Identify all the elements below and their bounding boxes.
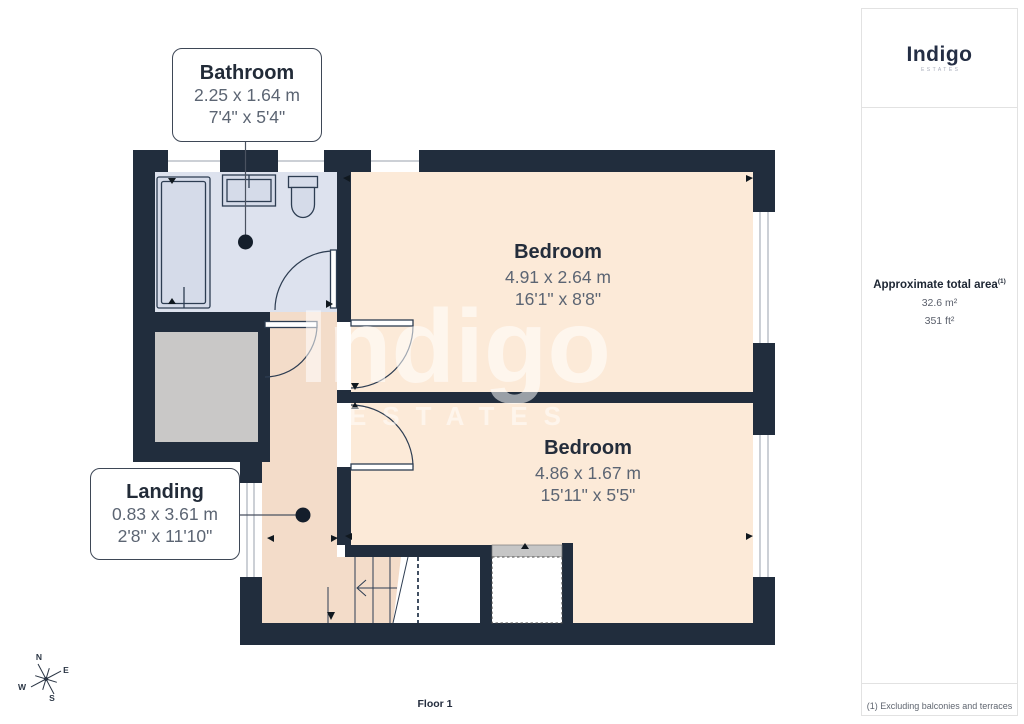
- headroom-dashed-area: [492, 557, 562, 623]
- window-top-1: [168, 150, 220, 172]
- callout-dim-metric: 2.25 x 1.64 m: [194, 85, 300, 107]
- window-right-bedroom2: [753, 435, 775, 577]
- bathroom-door-leaf: [331, 250, 337, 308]
- sidebar-logo-section: Indigo ESTATES: [862, 9, 1017, 108]
- storage-void-floor: [155, 332, 258, 442]
- compass-n: N: [36, 652, 42, 662]
- info-sidebar: Indigo ESTATES Approximate total area(1)…: [861, 8, 1018, 716]
- landing-callout: Landing 0.83 x 3.61 m 2'8" x 11'10": [90, 468, 240, 560]
- compass-rose: N E W S: [8, 642, 88, 720]
- landing-door-leaf: [265, 322, 317, 328]
- window-right-bedroom1: [753, 212, 775, 343]
- window-left-landing: [240, 483, 262, 577]
- window-top-2: [278, 150, 324, 172]
- wall-bottom: [240, 623, 775, 645]
- footnote-text: (1) Excluding balconies and terraces: [867, 701, 1013, 711]
- window-top-3: [371, 150, 419, 172]
- sidebar-area-section: Approximate total area(1) 32.6 m² 351 ft…: [862, 278, 1017, 684]
- callout-title: Landing: [126, 481, 204, 504]
- brand-logo: Indigo: [907, 44, 973, 65]
- compass-center: [44, 677, 48, 681]
- wall-storage-right: [258, 332, 270, 442]
- footnote-ref: (1): [998, 278, 1006, 285]
- bedroom1-door-leaf: [351, 320, 413, 326]
- bathroom-connector-dot: [238, 235, 253, 250]
- bedroom2-door-leaf: [351, 464, 413, 470]
- landing-floor: [262, 332, 337, 623]
- reduced-headroom-zone: [492, 545, 562, 623]
- landing-connector-dot: [296, 508, 311, 523]
- toilet-bowl: [292, 188, 315, 218]
- wall-bedroom-divider: [337, 392, 753, 403]
- sidebar-footnote: (1) Excluding balconies and terraces: [862, 684, 1017, 724]
- bathroom-callout: Bathroom 2.25 x 1.64 m 7'4" x 5'4": [172, 48, 322, 142]
- callout-dim-metric: 0.83 x 3.61 m: [112, 504, 218, 526]
- wall-top: [133, 150, 775, 172]
- bedroom2-label: Bedroom 4.86 x 1.67 m 15'11" x 5'5": [438, 436, 738, 507]
- room-dim-metric: 4.91 x 2.64 m: [408, 267, 708, 289]
- wall-bathroom-bottom: [133, 312, 270, 332]
- callout-dim-imperial: 7'4" x 5'4": [209, 107, 286, 129]
- total-area-ft2: 351 ft²: [862, 315, 1017, 327]
- room-dim-imperial: 15'11" x 5'5": [438, 485, 738, 507]
- compass-e: E: [63, 665, 69, 675]
- wall-stairs-top: [345, 545, 490, 557]
- wall-storage-bottom: [133, 442, 270, 462]
- wall-left: [133, 150, 155, 462]
- bedroom2-floor-lower: [573, 545, 753, 623]
- room-title: Bedroom: [438, 436, 738, 460]
- compass-s: S: [49, 693, 55, 703]
- room-dim-imperial: 16'1" x 8'8": [408, 289, 708, 311]
- compass-w: W: [18, 682, 27, 692]
- room-title: Bedroom: [408, 240, 708, 264]
- room-dim-metric: 4.86 x 1.67 m: [438, 463, 738, 485]
- callout-title: Bathroom: [200, 62, 294, 85]
- bedroom1-label: Bedroom 4.91 x 2.64 m 16'1" x 8'8": [408, 240, 708, 311]
- total-area-title: Approximate total area(1): [862, 278, 1017, 291]
- wall-stairwell-right: [480, 545, 492, 623]
- callout-dim-imperial: 2'8" x 11'10": [118, 526, 213, 548]
- wall-headroom-right: [562, 543, 573, 623]
- floorplan-page: Indigo ESTATES Bedroom 4.91 x 2.64 m 16'…: [0, 0, 1024, 724]
- brand-logo-sub: ESTATES: [918, 67, 960, 73]
- toilet-tank: [289, 177, 318, 188]
- wall-landing-bedrooms-lower: [337, 467, 351, 545]
- total-area-m2: 32.6 m²: [862, 297, 1017, 309]
